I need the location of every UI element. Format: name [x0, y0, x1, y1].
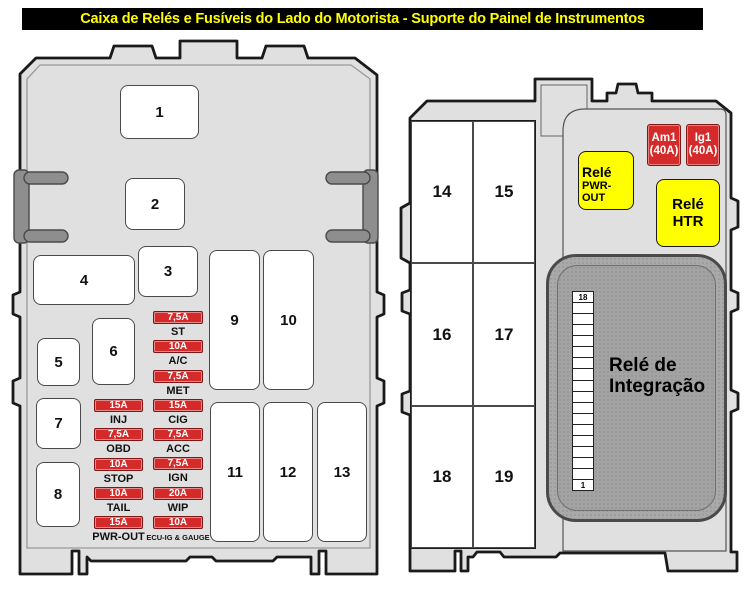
slot-11: 11 — [210, 402, 260, 542]
slot-14: 14 — [411, 121, 473, 263]
fuse-row-inj: 15AINJ — [94, 399, 143, 428]
fuse-acc-label: ACC — [166, 441, 190, 457]
slot-10: 10 — [263, 250, 314, 390]
fuse-ign-label: IGN — [168, 470, 188, 486]
relay-pwr-out-name: Relé — [582, 164, 633, 180]
pin-cell — [573, 381, 593, 392]
fuse-ecu-ig-gauge-label: ECU-IG & GAUGE — [146, 529, 209, 545]
fuse-am1-name: Am1 — [652, 132, 677, 145]
integration-relay-label-line2: Integração — [609, 377, 734, 398]
integration-relay-label: Relé de Integração — [609, 356, 734, 397]
pin-cell — [573, 414, 593, 425]
fuse-stop-label: STOP — [104, 471, 134, 487]
slot-8: 8 — [36, 462, 80, 527]
fuse-tail: 10A — [94, 487, 143, 500]
slot-3-label: 3 — [164, 263, 172, 280]
slot-16-label: 16 — [433, 325, 452, 345]
slot-17-label: 17 — [495, 325, 514, 345]
slot-7: 7 — [36, 398, 81, 449]
fuse-ig1-rating: (40A) — [689, 145, 718, 158]
pin-cell — [573, 392, 593, 403]
slot-4-label: 4 — [80, 272, 88, 289]
fuse-row-stop: 10ASTOP — [94, 458, 143, 487]
pin-cell-18: 18 — [573, 292, 593, 303]
fuse-tail-label: TAIL — [107, 500, 131, 516]
relay-htr-label: HTR — [673, 213, 704, 230]
pin-cell — [573, 325, 593, 336]
fuse-am1-rating: (40A) — [650, 145, 679, 158]
slot-6: 6 — [92, 318, 135, 385]
fuse-stop: 10A — [94, 458, 143, 471]
pin-cell — [573, 358, 593, 369]
pin-cell — [573, 347, 593, 358]
slot-1-label: 1 — [155, 104, 163, 121]
fuse-pwr-out: 15A — [94, 516, 143, 529]
fuse-ig1: Ig1 (40A) — [686, 124, 720, 166]
pin-cell — [573, 458, 593, 469]
slot-13-label: 13 — [334, 464, 351, 481]
pin-cell — [573, 303, 593, 314]
fuse-wip: 20A — [153, 487, 203, 500]
pin-cell — [573, 336, 593, 347]
fuse-row-obd: 7,5AOBD — [94, 428, 143, 457]
fuse-met: 7,5A — [153, 370, 203, 383]
pin-cell — [573, 447, 593, 458]
fuse-box-diagram: Caixa de Relés e Fusíveis do Lado do Mot… — [0, 0, 745, 614]
fuse-pwr-out-label: PWR-OUT — [92, 529, 145, 545]
slot-2-label: 2 — [151, 196, 159, 213]
connector-cell-grid: 14 15 16 17 18 19 — [410, 120, 536, 549]
fuse-am1: Am1 (40A) — [647, 124, 681, 166]
diagram-title-bar: Caixa de Relés e Fusíveis do Lado do Mot… — [22, 8, 703, 30]
slot-7-label: 7 — [54, 415, 62, 432]
slot-6-label: 6 — [109, 343, 117, 360]
slot-3: 3 — [138, 246, 198, 297]
fuse-column-right: 7,5AST 10AA/C 7,5AMET 15ACIG 7,5AACC 7,5… — [153, 311, 203, 545]
slot-19-label: 19 — [495, 467, 514, 487]
slot-9: 9 — [209, 250, 260, 390]
slot-18: 18 — [411, 406, 473, 548]
pin-cell — [573, 436, 593, 447]
fuse-obd: 7,5A — [94, 428, 143, 441]
slot-11-label: 11 — [227, 464, 243, 481]
integration-relay-pin-strip: 18 1 — [572, 291, 594, 491]
fuse-ign: 7,5A — [153, 457, 203, 470]
fuse-row-ac: 10AA/C — [153, 340, 203, 369]
pin-cell — [573, 314, 593, 325]
slot-13: 13 — [317, 402, 367, 542]
slot-9-label: 9 — [230, 312, 238, 329]
slot-16: 16 — [411, 263, 473, 406]
fuse-ig1-name: Ig1 — [695, 132, 712, 145]
fuse-row-cig: 15ACIG — [153, 399, 203, 428]
fuse-row-tail: 10ATAIL — [94, 487, 143, 516]
integration-relay-label-line1: Relé de — [609, 356, 734, 377]
slot-17: 17 — [473, 263, 535, 406]
fuse-ac: 10A — [153, 340, 203, 353]
slot-5: 5 — [37, 338, 80, 386]
fuse-cig: 15A — [153, 399, 203, 412]
slot-19: 19 — [473, 406, 535, 548]
fuse-st-label: ST — [171, 324, 185, 340]
slot-15: 15 — [473, 121, 535, 263]
fuse-ac-label: A/C — [169, 353, 188, 369]
relay-pwr-out-label: PWR-OUT — [582, 180, 633, 204]
slot-12-label: 12 — [280, 464, 297, 481]
slot-14-label: 14 — [433, 182, 452, 202]
fuse-cig-label: CIG — [168, 412, 188, 428]
fuse-row-ign: 7,5AIGN — [153, 457, 203, 486]
fuse-row-acc: 7,5AACC — [153, 428, 203, 457]
slot-10-label: 10 — [280, 312, 297, 329]
relay-pwr-out: Relé PWR-OUT — [578, 151, 634, 210]
pin-cell — [573, 469, 593, 480]
slot-4: 4 — [33, 255, 135, 305]
relay-htr-name: Relé — [672, 196, 704, 213]
fuse-inj-label: INJ — [110, 412, 127, 428]
fuse-acc: 7,5A — [153, 428, 203, 441]
pin-cell — [573, 403, 593, 414]
fuse-obd-label: OBD — [106, 441, 130, 457]
pin-bottom-label: 1 — [581, 481, 585, 490]
pin-top-label: 18 — [579, 293, 588, 302]
slot-1: 1 — [120, 85, 199, 139]
fuse-column-left: 15AINJ 7,5AOBD 10ASTOP 10ATAIL 15APWR-OU… — [94, 399, 143, 545]
fuse-st: 7,5A — [153, 311, 203, 324]
slot-2: 2 — [125, 178, 185, 230]
fuse-ecu-ig-gauge: 10A — [153, 516, 203, 529]
slot-12: 12 — [263, 402, 313, 542]
fuse-row-st: 7,5AST — [153, 311, 203, 340]
fuse-row-wip: 20AWIP — [153, 487, 203, 516]
fuse-row-met: 7,5AMET — [153, 370, 203, 399]
fuse-row-pwr-out: 15APWR-OUT — [94, 516, 143, 545]
fuse-inj: 15A — [94, 399, 143, 412]
relay-htr: Relé HTR — [656, 179, 720, 247]
fuse-met-label: MET — [166, 383, 189, 399]
pin-cell — [573, 425, 593, 436]
pin-cell-1: 1 — [573, 480, 593, 490]
diagram-title: Caixa de Relés e Fusíveis do Lado do Mot… — [80, 11, 645, 27]
fuse-wip-label: WIP — [168, 500, 189, 516]
slot-15-label: 15 — [495, 182, 514, 202]
fuse-row-ecu-ig-gauge: 10AECU-IG & GAUGE — [153, 516, 203, 545]
pin-cell — [573, 369, 593, 380]
slot-5-label: 5 — [54, 354, 62, 371]
slot-18-label: 18 — [433, 467, 452, 487]
slot-8-label: 8 — [54, 486, 62, 503]
